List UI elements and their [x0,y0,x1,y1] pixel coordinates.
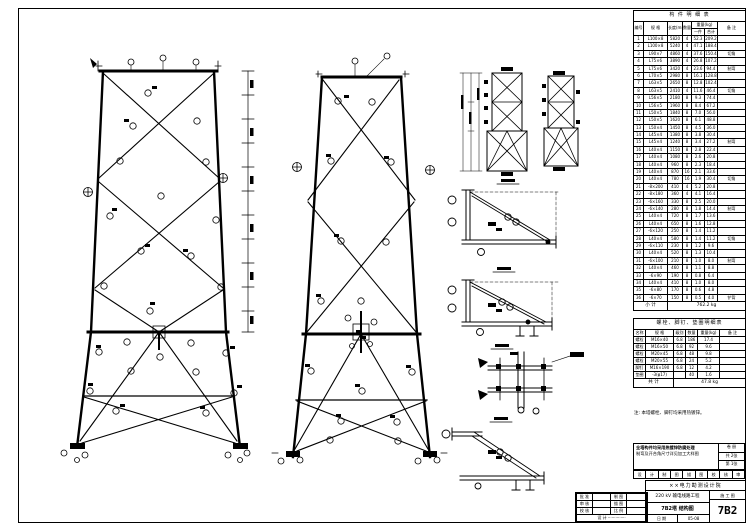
table-row: 2L100×85240447.1188.4 [634,43,746,50]
table-row: 26L40×465081.612.8 [634,220,746,227]
corner-detail-1 [448,179,560,256]
strip-cell: 校 [708,471,720,478]
col-header-weight: 重量(kg) [692,22,718,29]
table-row: 审 核描 图 [577,501,647,508]
bracing-panel-b [542,71,580,171]
col-header-remark: 备 注 [718,22,746,36]
table-row: 35-6×8017080.64.8 [634,287,746,294]
strip-cell: 制 [659,471,671,478]
strip-cell: 计 [646,471,658,478]
table-row: 12L50×5162086.148.8 [634,117,746,124]
dimension-chain-left-tower [242,71,254,332]
col-header-weight-one: 一件 [692,29,705,36]
table-row: 18L40×496082.318.4 [634,161,746,168]
table-row: 23-6×16033082.520.0 [634,198,746,205]
col-header-spec: 规 格 [644,22,668,36]
bolt-total-value: 47.8 kg [674,379,746,388]
bracing-panel-a [460,67,527,176]
table-row: 14L45×4138083.830.4 [634,132,746,139]
bom-total-label: 小 计 [634,302,668,311]
panel-a-dimensions [460,73,482,171]
table-row: 10L56×5196088.467.2 [634,102,746,109]
col-header-length: 长度(mm) [668,22,683,36]
strip-cell: 核 [720,471,732,478]
tower-elevation-right [272,53,447,464]
table-row: 34L40×441081.08.0 [634,279,746,286]
table-row: 22-8×18036044.116.4 [634,191,746,198]
sheet-volume: 卷 册 [719,444,744,453]
drawing-number: 7B2 [710,500,745,522]
table-row: 螺栓M16×406.818617.4 [634,337,746,344]
callout-smudges-right [305,95,411,418]
bolt-total-label: 共 计 [634,379,674,388]
notes-box: 全塔构件均采用热镀锌防腐处理 制弯及开合角尺寸详见加工大样图 卷 册 共 2张 … [633,443,745,470]
table-row: 31-6×10021081.08.0制弯 [634,257,746,264]
table-row: 36-6×7015080.54.0铲背 [634,294,746,301]
col-header: 重量(kg) [698,330,720,337]
table-row: 30L40×452081.310.4 [634,250,746,257]
general-note: 注: 本塔螺栓、脚钉均采用热镀锌。 [634,410,704,416]
bom-total-value: 762.2 kg [668,302,746,311]
col-header: 名称 [634,330,646,337]
stage-label: 施 工 图 [710,491,745,500]
col-header-qty: 数量 [683,22,692,36]
bom-table-wrap: 构 件 明 细 表 编号 规 格 长度(mm) 数量 重量(kg) 备 注 一件… [633,10,746,311]
tower-right-center-joint [345,312,377,352]
title-block: ××电力勘测设计院 220 kV 输电线路工程 7B2塔 结构图 日 期 05-… [645,480,746,523]
sheet-number-of: 第 1张 [719,461,744,469]
date-label: 日 期 [646,515,678,522]
bolt-table: 螺栓、脚钉、垫圈明细表 名称规 格级别数量重量(kg)备 注 螺栓M16×406… [633,318,746,388]
table-row: 13L50×4145084.536.0 [634,124,746,131]
col-header-weight-total: 合计 [705,29,718,36]
tower-right-feet [272,451,447,464]
bom-title: 构 件 明 细 表 [634,11,746,22]
table-row: 15L45×4124083.427.2制弯 [634,139,746,146]
signature-table: 批 准制 图审 核描 图校 核比 例 设 计 ·············· [576,493,647,522]
table-row: 3L90×74860437.6150.4切角 [634,50,746,57]
designer-row: 设 计 ·············· [577,515,647,522]
col-header: 数量 [686,330,698,337]
strip-cell: 审 [733,471,744,478]
bolt-table-wrap: 螺栓、脚钉、垫圈明细表 名称规 格级别数量重量(kg)备 注 螺栓M16×406… [633,318,746,388]
part-bubbles-right [308,53,415,444]
col-header: 规 格 [646,330,674,337]
table-row: 9L56×5218089.374.4 [634,95,746,102]
table-row: 29-6×11023081.29.6 [634,242,746,249]
table-row: 17L40×4108082.620.8 [634,154,746,161]
table-row: 33-6×9019080.86.4 [634,272,746,279]
table-row: 4L75×63890426.8107.2 [634,58,746,65]
drawing-title: 7B2塔 结构图 [646,503,709,515]
strip-cell: 图 [696,471,708,478]
corner-detail-3 [442,417,544,490]
sheet-count-cells: 卷 册 共 2张 第 1张 [718,444,744,469]
table-row: 垫圈-3(φ17)401.6 [634,372,746,379]
table-row: 1L100×85820452.3209.2 [634,36,746,43]
table-row: 21-8×20041045.220.8 [634,183,746,190]
table-row: 19L40×4870162.133.6 [634,169,746,176]
col-header: 级别 [674,330,686,337]
callout-smudges-left [88,86,242,409]
joint-marker-icon [293,163,435,175]
table-row: 螺栓M16×506.8929.6 [634,344,746,351]
table-row: 校 核比 例 [577,508,647,515]
notes-line-2: 制弯及开合角尺寸详见加工大样图 [636,451,716,457]
table-row: 27-6×12025081.411.2 [634,228,746,235]
bom-table: 构 件 明 细 表 编号 规 格 长度(mm) 数量 重量(kg) 备 注 一件… [633,10,746,311]
corner-detail-2 [448,267,558,336]
tower-elevation-left [61,55,254,463]
leg-joint-detail [478,344,584,414]
strip-cell: 图 [671,471,683,478]
table-row: 20L40×4780161.930.4切角 [634,176,746,183]
strip-cell: 描 [683,471,695,478]
table-row: 批 准制 图 [577,494,647,501]
table-row: 25L40×472081.713.6 [634,213,746,220]
project-title: 220 kV 输电线路工程 [646,491,709,503]
sheet-total: 共 2张 [719,453,744,462]
date-value: 05-08 [678,515,709,522]
table-row: 28L40×458081.411.2切角 [634,235,746,242]
table-row: 6L70×52980816.1128.8 [634,72,746,79]
table-row: 11L50×5184087.056.0 [634,109,746,116]
drawing-sheet: 构 件 明 细 表 编号 规 格 长度(mm) 数量 重量(kg) 备 注 一件… [0,0,749,530]
tower-left-feet [61,443,250,463]
table-row: 32L40×446081.18.8 [634,265,746,272]
org-name: ××电力勘测设计院 [646,481,745,491]
table-row: 脚钉M16×1906.8124.2 [634,365,746,372]
signature-grid: 批 准制 图审 核描 图校 核比 例 设 计 ·············· [575,492,648,523]
table-row: 16L40×4115082.822.4 [634,146,746,153]
bolt-table-title: 螺栓、脚钉、垫圈明细表 [634,319,746,330]
col-header-no: 编号 [634,22,644,36]
table-row: 24-6×14028081.814.4制弯 [634,205,746,212]
table-row: 螺栓M20×556.8245.2 [634,358,746,365]
strip-cell: 设 [634,471,646,478]
table-row: 螺栓M20×456.8489.8 [634,351,746,358]
signature-strip: 设计制图描图校核审 [633,470,745,479]
col-header: 备 注 [720,330,746,337]
table-row: 8L63×52410411.646.4切角 [634,87,746,94]
table-row: 7L63×52650812.8102.4 [634,80,746,87]
table-row: 5L75×63420423.694.4制弯 [634,65,746,72]
